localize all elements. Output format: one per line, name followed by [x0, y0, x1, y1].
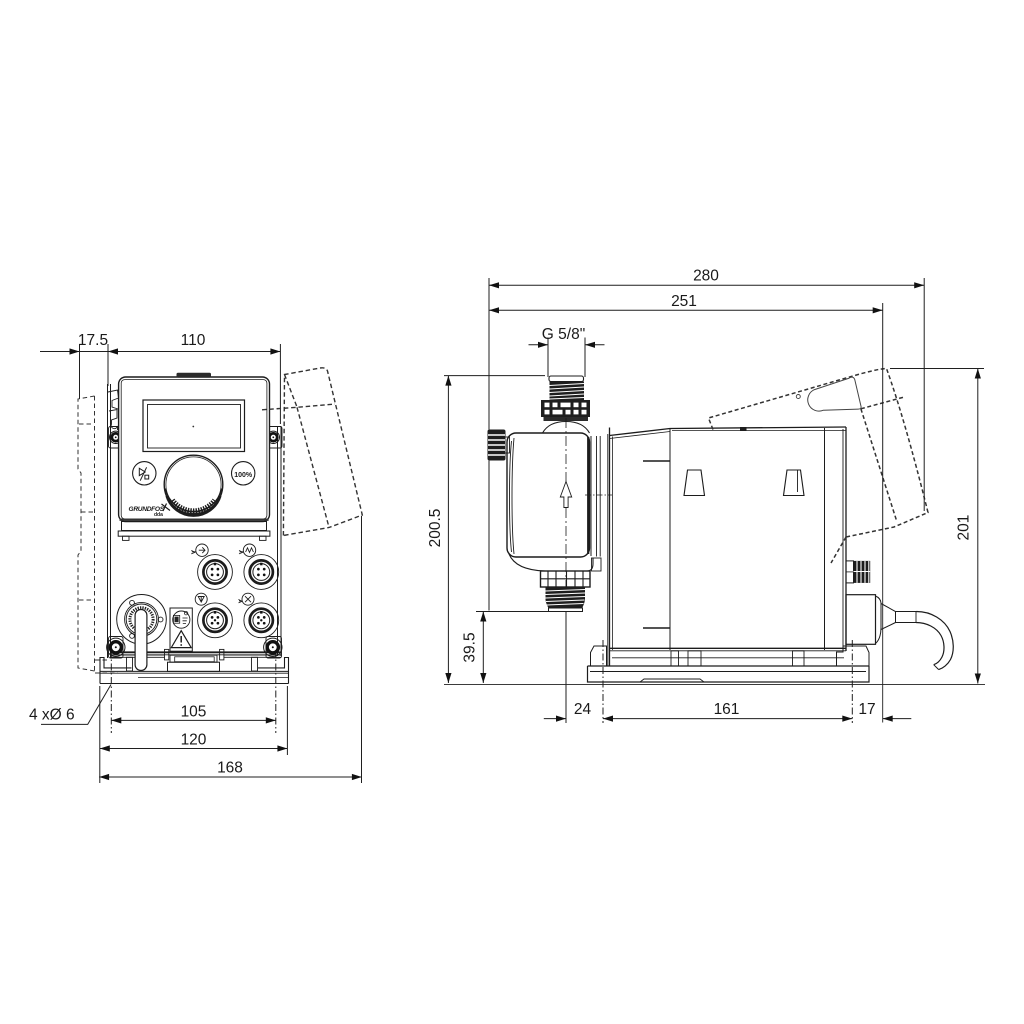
svg-text:105: 105 — [181, 704, 207, 721]
svg-text:4 xØ 6: 4 xØ 6 — [29, 707, 75, 724]
svg-text:120: 120 — [181, 732, 207, 749]
svg-text:201: 201 — [956, 515, 973, 541]
svg-text:100%: 100% — [234, 472, 253, 479]
svg-text:17.5: 17.5 — [78, 332, 108, 349]
svg-text:39.5: 39.5 — [462, 632, 479, 662]
svg-text:dda: dda — [154, 512, 163, 518]
svg-text:110: 110 — [181, 332, 206, 349]
svg-text:17: 17 — [858, 701, 875, 718]
svg-text:280: 280 — [693, 268, 719, 285]
svg-text:200.5: 200.5 — [427, 509, 444, 548]
svg-text:G 5/8": G 5/8" — [542, 326, 585, 343]
svg-text:161: 161 — [714, 701, 740, 718]
svg-text:168: 168 — [217, 760, 243, 777]
svg-text:24: 24 — [574, 701, 592, 718]
svg-text:251: 251 — [671, 293, 697, 310]
